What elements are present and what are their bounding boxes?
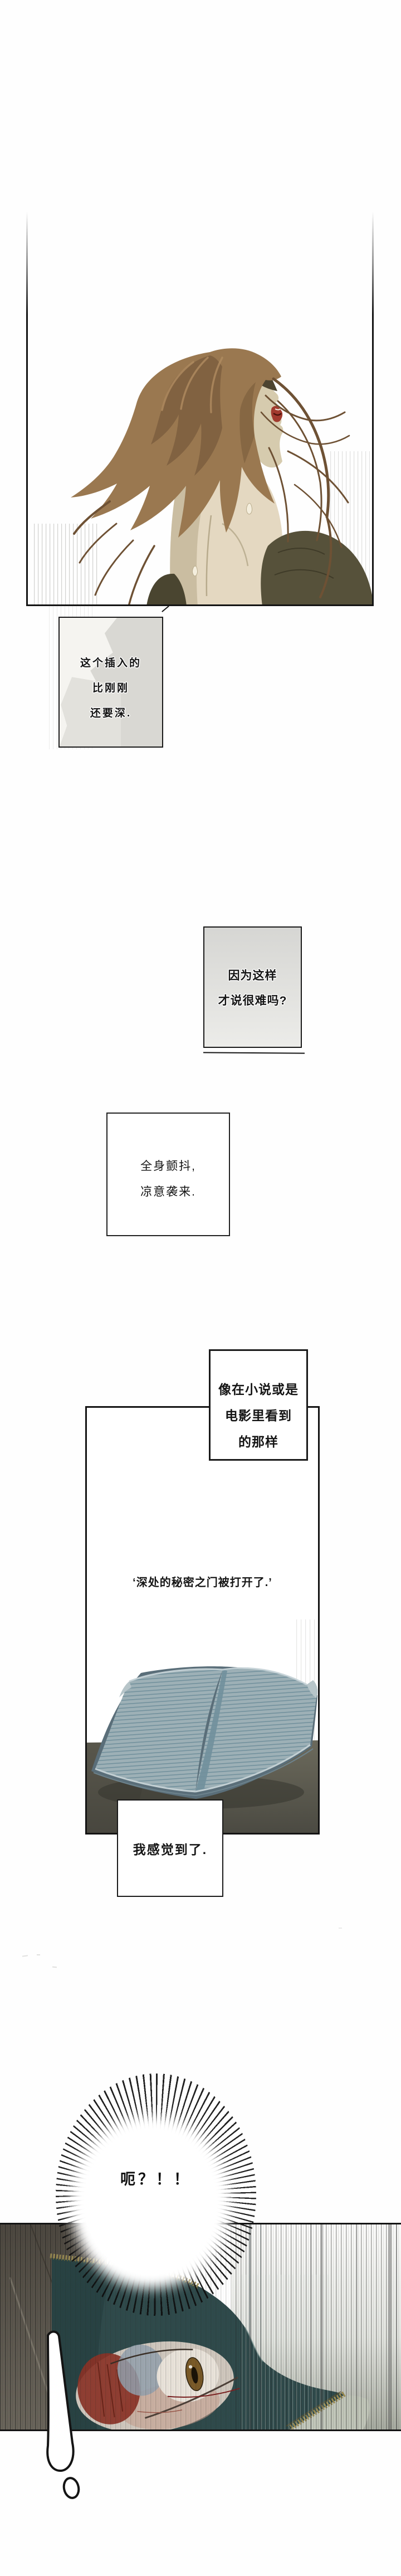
figure-illustration xyxy=(26,212,374,606)
caption-line: 我感觉到了. xyxy=(118,1841,222,1858)
caption-line: 电影里看到 xyxy=(211,1403,306,1429)
caption-box-3: 全身颤抖, 凉意袭来. xyxy=(106,1113,230,1236)
corner-tick xyxy=(162,606,169,612)
panel-border-left xyxy=(26,212,28,606)
ink-speck xyxy=(52,1967,57,1968)
exclamation-dot xyxy=(62,2477,81,2500)
bg-streaks-left xyxy=(32,524,99,606)
shock-burst: 呃？！！ xyxy=(56,2074,256,2316)
burst-text: 呃？！！ xyxy=(56,2167,256,2189)
quote-text: ‘深处的秘密之门被打开了.’ xyxy=(87,1573,318,1589)
ink-speck xyxy=(339,1928,342,1929)
exclamation-mark xyxy=(39,2329,89,2507)
book-illustration xyxy=(87,1408,318,1833)
caption-line: 全身颤抖, xyxy=(107,1154,229,1179)
caption-line: 这个插入的 xyxy=(60,651,162,676)
caption-box-2: 因为这样 才说很难吗? xyxy=(203,926,302,1048)
panel-book: ‘深处的秘密之门被打开了.’ xyxy=(85,1406,320,1835)
figure-woman xyxy=(71,348,374,606)
caption-line: 因为这样 xyxy=(204,963,301,988)
caption-line: 比刚刚 xyxy=(60,676,162,701)
sweat-drop xyxy=(192,566,197,576)
caption-line: 的那样 xyxy=(211,1429,306,1455)
caption-box-1: 这个插入的 比刚刚 还要深. xyxy=(58,617,163,748)
panel-figure xyxy=(26,212,374,606)
caption-box-2-shadow-line xyxy=(203,1052,305,1053)
caption-box-4: 像在小说或是 电影里看到 的那样 xyxy=(209,1349,308,1461)
webtoon-page: 这个插入的 比刚刚 还要深. 因为这样 才说很难吗? 全身颤抖, 凉意袭来. xyxy=(0,0,401,2576)
caption-box-5: 我感觉到了. xyxy=(117,1799,223,1897)
caption-line: 凉意袭来. xyxy=(107,1179,229,1205)
caption-line: 像在小说或是 xyxy=(211,1377,306,1403)
ink-speck xyxy=(37,1954,40,1955)
panel-border-right xyxy=(372,212,374,606)
caption-line: 还要深. xyxy=(60,701,162,726)
ink-speck xyxy=(22,1955,28,1957)
exclamation-bar xyxy=(47,2331,73,2471)
caption-line: 才说很难吗? xyxy=(204,988,301,1013)
burst-core xyxy=(84,2129,217,2275)
